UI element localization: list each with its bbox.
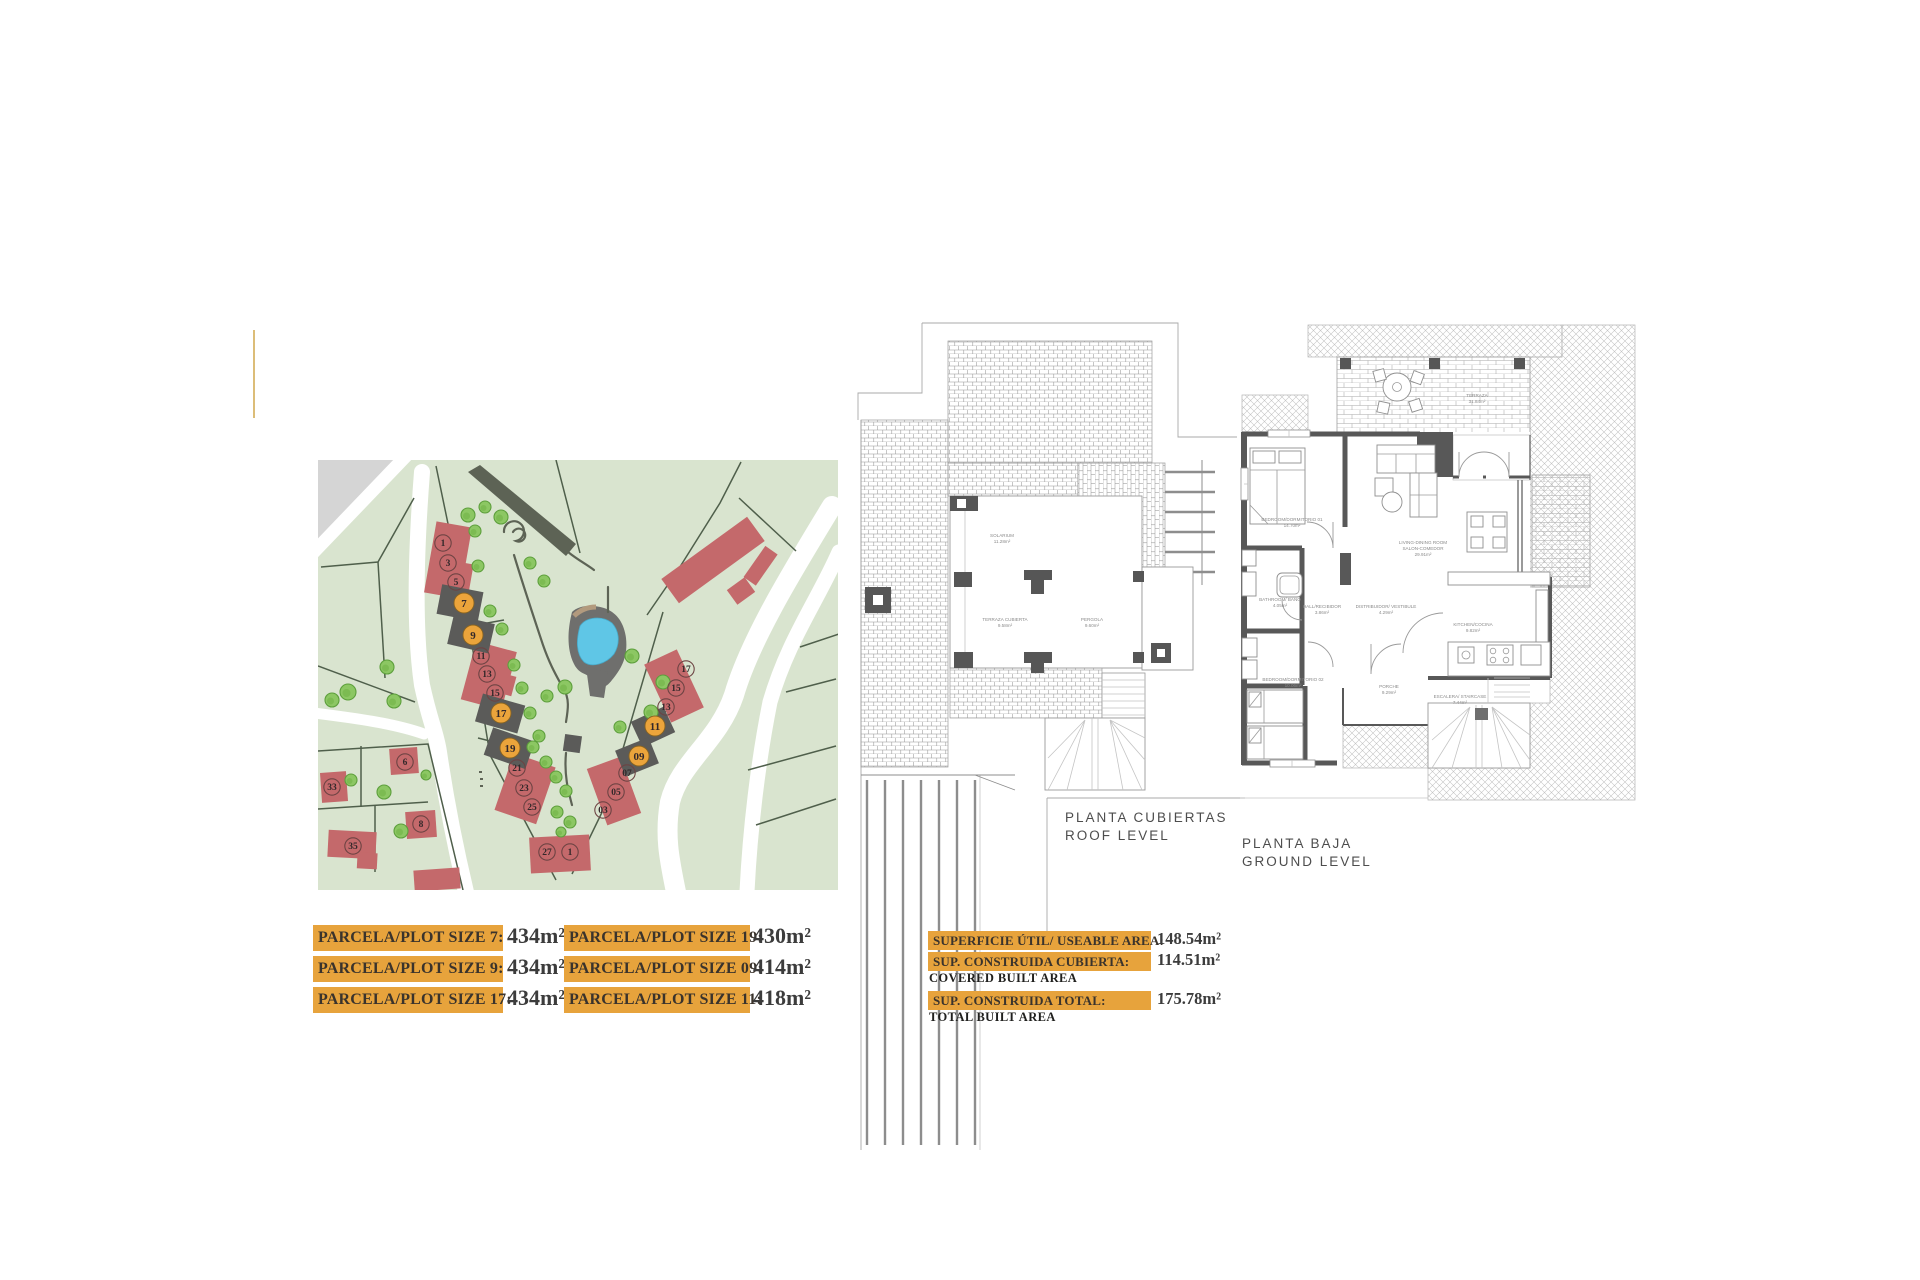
area-value: 114.51m² xyxy=(1157,950,1220,969)
area-label: SUPERFICIE ÚTIL/ USEABLE AREA: xyxy=(928,931,1151,950)
plot-size-value: 434m² xyxy=(507,954,565,980)
tree-icon xyxy=(527,741,539,753)
plot-number: 9 xyxy=(470,630,476,642)
plot-number: 1 xyxy=(568,848,573,858)
tree-icon xyxy=(550,771,562,783)
site-plan-map: 1357911131517192123252711715131109070503… xyxy=(318,460,838,890)
room-label: BEDROOM/DORMITORIO 01 xyxy=(1261,517,1323,522)
room-label: 29.91m² xyxy=(1415,552,1432,557)
plot-number: 19 xyxy=(505,743,517,755)
roof-plan-subtitle: ROOF LEVEL xyxy=(1065,828,1170,843)
room-label: ESCALERA/ STAIRCASE xyxy=(1434,694,1487,699)
park-shed xyxy=(563,734,582,753)
room-label: KITCHEN/COCINA xyxy=(1453,622,1493,627)
room-label: 9.82m² xyxy=(1466,628,1481,633)
plot-number: 5 xyxy=(454,578,459,588)
terrace-below-porch xyxy=(1343,725,1428,768)
tree-icon xyxy=(538,575,550,587)
tree-icon xyxy=(614,721,626,733)
room-label: 9.29m² xyxy=(1382,690,1397,695)
pergola-slats xyxy=(1165,460,1215,585)
plot-size-label: PARCELA/PLOT SIZE 7: xyxy=(313,925,503,951)
plot-number: 13 xyxy=(661,703,671,713)
tree-icon xyxy=(469,525,481,537)
tree-icon xyxy=(394,824,408,838)
plot-number: 3 xyxy=(446,559,451,569)
tree-icon xyxy=(564,816,576,828)
plot-number: 33 xyxy=(327,783,337,793)
tree-icon xyxy=(325,693,339,707)
plot-size-label: PARCELA/PLOT SIZE 09: xyxy=(564,956,750,982)
area-sublabel: TOTAL BUILT AREA xyxy=(929,1010,1056,1025)
room-label: 11.28m² xyxy=(994,539,1011,544)
plot-number: 15 xyxy=(490,689,500,699)
area-value: 148.54m² xyxy=(1157,929,1221,948)
plot-number: 03 xyxy=(598,806,608,816)
accent-line xyxy=(253,330,255,418)
area-sublabel: COVERED BUILT AREA xyxy=(929,971,1077,986)
tree-icon xyxy=(345,774,357,786)
room-label: PERGOLA xyxy=(1081,617,1104,622)
plot-number: 27 xyxy=(542,848,552,858)
plot-size-value: 418m² xyxy=(753,985,811,1011)
room-label: BEDROOM/DORMITORIO 02 xyxy=(1262,677,1324,682)
tree-icon xyxy=(541,690,553,702)
tree-icon xyxy=(380,660,394,674)
room-label: TERRAZA xyxy=(1466,393,1488,398)
plot-number: 25 xyxy=(527,803,537,813)
plot-marker-highlighted: 09 xyxy=(629,746,649,766)
room-label: LIVING-DINING ROOM xyxy=(1399,540,1447,545)
roof-floor-plan: SOLARIUM11.28m²TERRAZA CUBIERTA9.58m²PER… xyxy=(855,290,1250,1160)
tree-icon xyxy=(484,605,496,617)
plot-number: 35 xyxy=(348,842,358,852)
tree-icon xyxy=(558,680,572,694)
area-label: SUP. CONSTRUIDA CUBIERTA: xyxy=(928,952,1151,971)
room-label: 10.06m² xyxy=(1285,683,1302,688)
tree-icon xyxy=(625,649,639,663)
tree-icon xyxy=(340,684,356,700)
room-label: PORCHE xyxy=(1379,684,1399,689)
tree-icon xyxy=(496,623,508,635)
room-label: 9.60m² xyxy=(1085,623,1100,628)
room-label: SOLARIUM xyxy=(990,533,1014,538)
area-value: 175.78m² xyxy=(1157,989,1221,1008)
ground-plan-title: PLANTA BAJA xyxy=(1242,836,1352,851)
plot-number: 15 xyxy=(671,684,681,694)
porch-area xyxy=(1453,435,1530,480)
tree-icon xyxy=(540,756,552,768)
plot-size-value: 414m² xyxy=(753,954,811,980)
room-label: 4.05m² xyxy=(1273,603,1288,608)
plot-marker-highlighted: 11 xyxy=(645,716,665,736)
ground-plan-subtitle: GROUND LEVEL xyxy=(1242,854,1372,869)
plot-size-label: PARCELA/PLOT SIZE 19: xyxy=(564,925,750,951)
plot-number: 11 xyxy=(650,721,660,733)
tree-icon xyxy=(533,730,545,742)
tree-icon xyxy=(524,557,536,569)
plot-size-label: PARCELA/PLOT SIZE 9: xyxy=(313,956,503,982)
plot-number: 13 xyxy=(482,670,492,680)
plot-number: 21 xyxy=(512,764,522,774)
area-label: SUP. CONSTRUIDA TOTAL: xyxy=(928,991,1151,1010)
plot-number: 1 xyxy=(441,539,446,549)
plot-number: 6 xyxy=(403,758,408,768)
plot-marker-highlighted: 17 xyxy=(491,703,511,723)
tree-icon xyxy=(461,508,475,522)
brochure-sheet: 1357911131517192123252711715131109070503… xyxy=(0,0,1920,1280)
tree-icon xyxy=(479,501,491,513)
tree-icon xyxy=(421,770,431,780)
plot-marker-highlighted: 19 xyxy=(500,738,520,758)
ground-floor-plan: TERRAZA31.84m²BEDROOM/DORMITORIO 0114.70… xyxy=(1240,320,1640,880)
plot-marker-highlighted: 7 xyxy=(454,593,474,613)
room-label: HALL/RECIBIDOR xyxy=(1303,604,1342,609)
plot-size-label: PARCELA/PLOT SIZE 17: xyxy=(313,987,503,1013)
roof-plan-title: PLANTA CUBIERTAS xyxy=(1065,810,1228,825)
tree-icon xyxy=(556,827,566,837)
room-label: 14.70m² xyxy=(1284,523,1301,528)
room-label: 7.44m² xyxy=(1453,700,1468,705)
plot-number: 07 xyxy=(622,769,632,779)
tree-icon xyxy=(508,659,520,671)
plot-number: 17 xyxy=(681,665,691,675)
room-label: DISTRIBUIDOR/ VESTIBULE xyxy=(1356,604,1417,609)
tree-icon xyxy=(494,510,508,524)
plot-number: 8 xyxy=(419,820,424,830)
plot-marker-highlighted: 9 xyxy=(463,625,483,645)
room-label: TERRAZA CUBIERTA xyxy=(982,617,1028,622)
tree-icon xyxy=(524,707,536,719)
plot-size-value: 434m² xyxy=(507,985,565,1011)
tree-icon xyxy=(551,806,563,818)
plot-size-label: PARCELA/PLOT SIZE 11: xyxy=(564,987,750,1013)
room-label: 3.86m² xyxy=(1315,610,1330,615)
room-label: SALON-COMEDOR xyxy=(1402,546,1444,551)
plot-size-value: 434m² xyxy=(507,923,565,949)
tree-icon xyxy=(560,785,572,797)
tree-icon xyxy=(377,785,391,799)
plot-number: 7 xyxy=(461,598,467,610)
room-label: 4.29m² xyxy=(1379,610,1394,615)
plot-number: 17 xyxy=(496,708,508,720)
room-label: 9.58m² xyxy=(998,623,1013,628)
room-label: 31.84m² xyxy=(1469,399,1486,404)
plot-number: 23 xyxy=(519,784,529,794)
tree-icon xyxy=(516,682,528,694)
plot-number: 05 xyxy=(611,788,621,798)
room-label: BATHROOM/ BAÑO xyxy=(1259,596,1301,602)
plot-size-value: 430m² xyxy=(753,923,811,949)
plot-number: 09 xyxy=(634,751,646,763)
tree-icon xyxy=(387,694,401,708)
plot-number: 11 xyxy=(477,652,486,662)
tree-icon xyxy=(472,560,484,572)
